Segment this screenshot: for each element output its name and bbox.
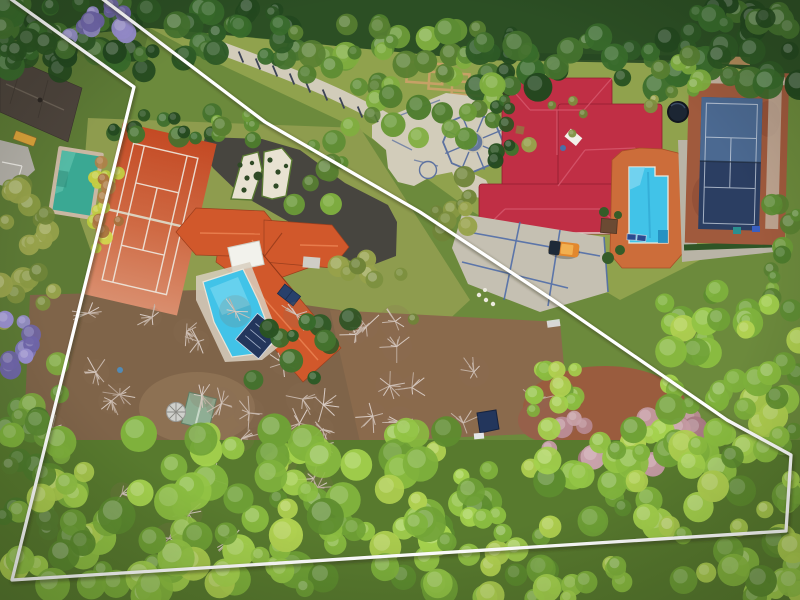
aerial-photo [0, 0, 800, 600]
vignette [0, 0, 800, 600]
